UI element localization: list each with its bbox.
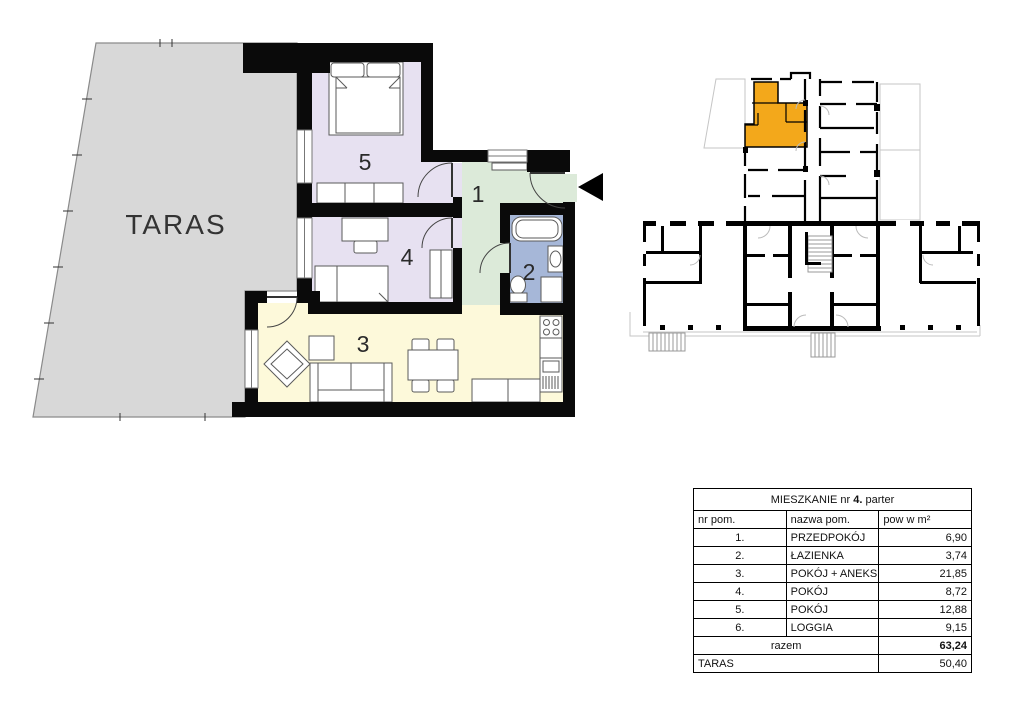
room-name: ŁAZIENKA	[786, 547, 879, 565]
bathtub	[512, 217, 562, 241]
room-no: 5.	[694, 601, 787, 619]
washer-space	[541, 277, 562, 302]
total-value: 63,24	[879, 637, 972, 655]
room-area: 8,72	[879, 583, 972, 601]
room-no: 2.	[694, 547, 787, 565]
room-no: 1.	[694, 529, 787, 547]
room-name: POKÓJ	[786, 601, 879, 619]
col-header-name: nazwa pom.	[786, 511, 879, 529]
kitchen-counter	[540, 338, 562, 358]
col-header-area: pow w m²	[879, 511, 972, 529]
room-name: LOGGIA	[786, 619, 879, 637]
entry-arrow-icon	[578, 173, 603, 201]
radiator	[492, 163, 527, 170]
table-row: 2. ŁAZIENKA 3,74	[694, 547, 972, 565]
single-bed	[315, 266, 388, 302]
taras-value: 50,40	[879, 655, 972, 673]
room1-label: 1	[472, 181, 485, 207]
overview-ground-outline	[630, 312, 980, 336]
window	[245, 330, 258, 388]
terrace-label: TARAS	[125, 209, 226, 240]
door2-threshold	[500, 243, 510, 273]
table-taras-row: TARAS 50,40	[694, 655, 972, 673]
window	[488, 150, 527, 162]
room-name: PRZEDPOKÓJ	[786, 529, 879, 547]
taras-label: TARAS	[694, 655, 879, 673]
room5-label: 5	[359, 149, 372, 175]
stove	[540, 316, 562, 338]
room-no: 6.	[694, 619, 787, 637]
highlighted-unit	[745, 82, 807, 147]
table-title-prefix: MIESZKANIE nr	[771, 494, 854, 506]
room-area: 3,74	[879, 547, 972, 565]
room-area: 21,85	[879, 565, 972, 583]
table-title-row: MIESZKANIE nr 4. parter	[694, 489, 972, 511]
table-row: 6. LOGGIA 9,15	[694, 619, 972, 637]
stairwell	[805, 232, 832, 272]
kitchen-counter-bottom	[472, 379, 540, 402]
sofa	[310, 363, 392, 402]
table-row: 4. POKÓJ 8,72	[694, 583, 972, 601]
building-overview	[630, 73, 981, 357]
window	[297, 130, 312, 183]
floorplan-page: TARAS	[0, 0, 1024, 724]
washbasin	[548, 246, 563, 272]
kitchen-sink	[540, 358, 562, 392]
table-title-suffix: parter	[862, 494, 894, 506]
room2-label: 2	[523, 259, 536, 285]
door5-threshold	[453, 163, 462, 197]
table-row: 3. POKÓJ + ANEKS KUCH. 21,85	[694, 565, 972, 583]
window	[297, 218, 312, 278]
entry-threshold	[563, 174, 577, 202]
wardrobe-room5	[317, 183, 403, 203]
room-area: 6,90	[879, 529, 972, 547]
door4-threshold	[453, 218, 462, 248]
room-area: 9,15	[879, 619, 972, 637]
wardrobe-room4	[430, 250, 452, 298]
room3-label: 3	[357, 331, 370, 357]
overview-loggia-outline	[880, 84, 920, 150]
entrance-stairs	[649, 333, 835, 357]
room-area: 12,88	[879, 601, 972, 619]
total-label: razem	[694, 637, 879, 655]
overview-loggia-outline	[880, 150, 920, 220]
table-total-row: razem 63,24	[694, 637, 972, 655]
area-table: MIESZKANIE nr 4. parter nr pom. nazwa po…	[693, 488, 972, 673]
table-row: 5. POKÓJ 12,88	[694, 601, 972, 619]
table-row: 1. PRZEDPOKÓJ 6,90	[694, 529, 972, 547]
room4-label: 4	[401, 244, 414, 270]
coffee-table	[309, 336, 334, 360]
room-name: POKÓJ + ANEKS KUCH.	[786, 565, 879, 583]
room-no: 3.	[694, 565, 787, 583]
room-name: POKÓJ	[786, 583, 879, 601]
table-header-row: nr pom. nazwa pom. pow w m²	[694, 511, 972, 529]
col-header-no: nr pom.	[694, 511, 787, 529]
double-bed	[329, 62, 403, 135]
overview-terrace-outline	[704, 79, 745, 148]
room-no: 4.	[694, 583, 787, 601]
